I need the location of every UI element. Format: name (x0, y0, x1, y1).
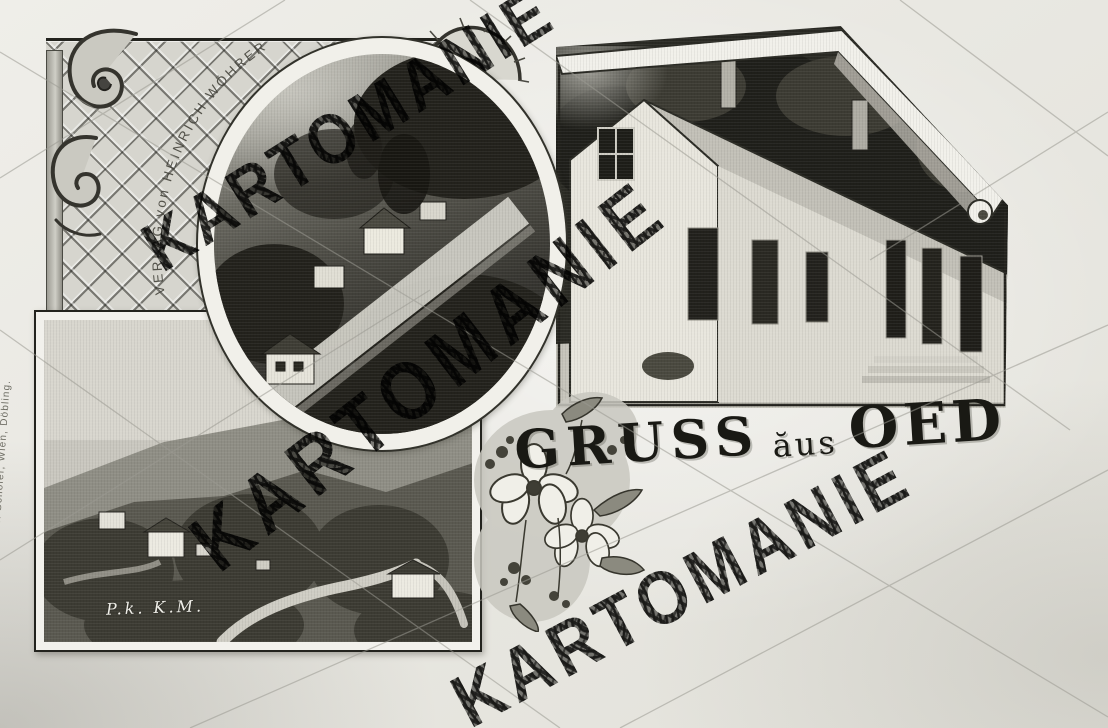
greeting-word-oed: OED (847, 386, 1008, 462)
greeting-word-aus: ăus (771, 423, 838, 465)
postcard-scan: P.k. K.M. (0, 0, 1108, 728)
svg-text:VERLAG von HEINRICH WÖHRER: VERLAG von HEINRICH WÖHRER (149, 38, 270, 296)
